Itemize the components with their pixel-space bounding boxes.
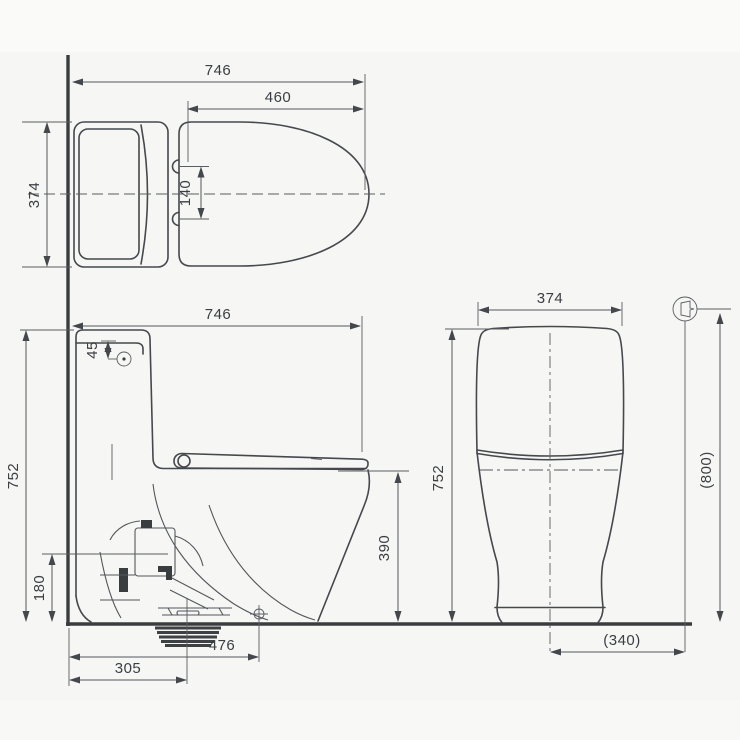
dim-front-overall-width: 374	[478, 290, 622, 326]
dim-label: 374	[26, 182, 43, 209]
technical-drawing-page: 746 460 374 140	[0, 0, 740, 740]
scan-margin-top	[0, 0, 740, 52]
dim-front-overall-height: 752	[430, 329, 509, 621]
front-foot-right	[598, 608, 603, 623]
dim-label: 746	[205, 62, 232, 79]
dim-label: 374	[537, 290, 564, 307]
dim-side-overall-depth: 746	[73, 306, 362, 452]
dim-side-outlet-height: 180	[31, 554, 168, 621]
datum-lines	[66, 55, 692, 686]
dim-label: 390	[376, 535, 393, 562]
dim-plan-seat-length: 460	[188, 89, 363, 162]
side-cavity-curve-inner	[100, 552, 121, 618]
dim-label: 752	[430, 465, 447, 492]
dim-label: 45	[84, 341, 101, 359]
side-seat-split-mark	[311, 459, 322, 460]
side-cavity-curve-front	[209, 505, 315, 620]
dim-front-supply-offset: (340)	[551, 632, 684, 652]
dim-label: (800)	[698, 451, 715, 489]
dim-label: 752	[5, 463, 22, 490]
plan-cistern-lid-curve	[141, 125, 148, 264]
dim-side-wall-to-outlet: 305	[70, 660, 186, 680]
plan-cistern-outline	[74, 122, 168, 267]
side-bowl-front	[318, 470, 369, 621]
side-base-back	[76, 596, 91, 622]
front-body-left-taper	[477, 452, 499, 607]
dim-label: (340)	[603, 632, 641, 649]
side-seat-profile	[174, 454, 368, 470]
plan-hinge-hole-bottom	[173, 213, 180, 226]
side-internal-mechanism	[100, 520, 214, 609]
dim-plan-hinge-spacing: 140	[177, 167, 209, 220]
front-view: 374 752 (800) (340)	[430, 290, 731, 652]
front-body-right-taper	[601, 452, 623, 607]
dim-label: 746	[205, 306, 232, 323]
scan-margin-bottom	[0, 700, 740, 740]
dim-side-button-offset: 45	[84, 341, 131, 366]
front-foot-left	[497, 608, 502, 623]
dim-label: 180	[31, 575, 48, 602]
position-cross-mark	[250, 605, 268, 662]
dim-front-supply-height: (800)	[698, 314, 720, 621]
toilet-dimension-drawing: 746 460 374 140	[0, 0, 740, 740]
dim-label: 140	[177, 180, 194, 207]
side-seat-hinge-pin	[178, 455, 190, 467]
dim-plan-overall-width: 374	[22, 122, 72, 267]
dim-label: 460	[265, 89, 292, 106]
side-cistern-and-rim-outline	[76, 330, 366, 596]
side-view: 746 45 752 180 390	[5, 306, 409, 684]
dim-label: 476	[209, 637, 236, 654]
dim-plan-overall-length: 746	[73, 62, 365, 190]
side-cavity-curve-back	[153, 484, 268, 620]
plan-view: 746 460 374 140	[22, 62, 385, 267]
dim-label: 305	[115, 660, 142, 677]
plan-hinge-hole-top	[173, 160, 180, 173]
